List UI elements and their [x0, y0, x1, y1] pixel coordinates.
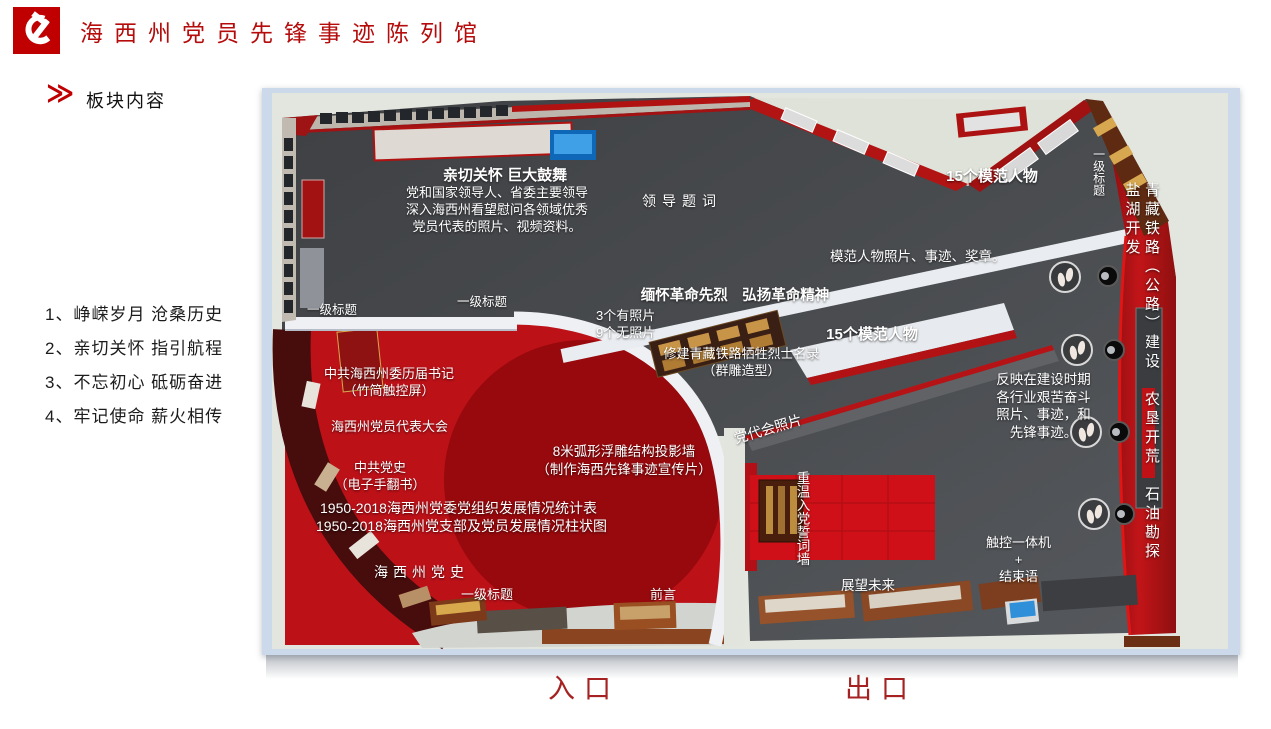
- label-model-figures-top: 15个模范人物: [917, 167, 1067, 187]
- label-secretaries: 中共海西州委历届书记 （竹简触控屏）: [314, 366, 464, 400]
- label-future: 展望未来: [841, 577, 917, 595]
- double-chevron-icon: ≫: [46, 80, 74, 107]
- label-level1-left: 一级标题: [307, 302, 369, 318]
- label-leader-inscription: 领导题词: [642, 192, 752, 210]
- list-item-4: 4、牢记使命 薪火相传: [45, 402, 223, 436]
- label-stat-table: 1950-2018海西州党委党组织发展情况统计表: [320, 499, 660, 517]
- list-item-3: 3、不忘初心 砥砺奋进: [45, 368, 223, 402]
- label-congress: 海西州党员代表大会: [331, 419, 471, 436]
- floor-plan: 亲切关怀 巨大鼓舞 党和国家领导人、省委主要领导 深入海西州看望慰问各领域优秀 …: [262, 88, 1240, 655]
- entrance-label: 入口: [548, 667, 620, 706]
- page-title: 海西州党员先锋事迹陈列馆: [80, 14, 488, 48]
- list-item-1: 1、峥嵘岁月 沧桑历史: [45, 300, 223, 334]
- label-projection-wall: 8米弧形浮雕结构投影墙 （制作海西先锋事迹宣传片）: [536, 443, 712, 478]
- label-level1-right: 一级标题: [1090, 148, 1106, 218]
- hall-gap: [724, 428, 745, 646]
- section-heading: 板块内容: [86, 87, 166, 113]
- label-level1-mid: 一级标题: [457, 294, 519, 310]
- label-oath-wall: 重温入党誓词墙: [793, 471, 811, 581]
- exit-label: 出口: [845, 667, 917, 706]
- label-model-photos: 模范人物照片、事迹、奖章。: [830, 248, 1030, 266]
- label-stat-chart: 1950-2018海西州党支部及党员发展情况柱状图: [316, 517, 661, 535]
- party-emblem-icon: [13, 7, 60, 54]
- label-model-figures-mid: 15个模范人物: [807, 325, 937, 345]
- label-memorial: 修建青藏铁路牺牲烈士名录 （群雕造型）: [654, 346, 829, 380]
- label-care-desc: 党和国家领导人、省委主要领导 深入海西州看望慰问各领域优秀 党员代表的照片、视频…: [380, 185, 614, 236]
- label-railway-vertical: 青藏铁路（公路）建设 农垦开荒 石油勘探 盐湖开发: [1122, 182, 1161, 574]
- plan-shadow: [266, 655, 1238, 679]
- label-haixi-history: 海西州党史: [374, 563, 504, 581]
- label-care-title: 亲切关怀 巨大鼓舞: [410, 166, 600, 186]
- label-photos-count: 3个有照片 9个无照片: [596, 308, 686, 342]
- label-level1-bottom: 一级标题: [461, 587, 523, 604]
- list-item-2: 2、亲切关怀 指引航程: [45, 334, 223, 368]
- label-touch-machine: 触控一体机 + 结束语: [971, 535, 1066, 586]
- label-party-history: 中共党史 （电子手翻书）: [314, 460, 446, 494]
- label-construction: 反映在建设时期 各行业艰苦奋斗 照片、事迹，和 先锋事迹。: [986, 371, 1101, 441]
- content-list: 1、峥嵘岁月 沧桑历史 2、亲切关怀 指引航程 3、不忘初心 砥砺奋进 4、牢记…: [45, 300, 223, 436]
- label-preface: 前言: [650, 587, 700, 604]
- label-martyrs-title: 缅怀革命先烈 弘扬革命精神: [630, 287, 840, 306]
